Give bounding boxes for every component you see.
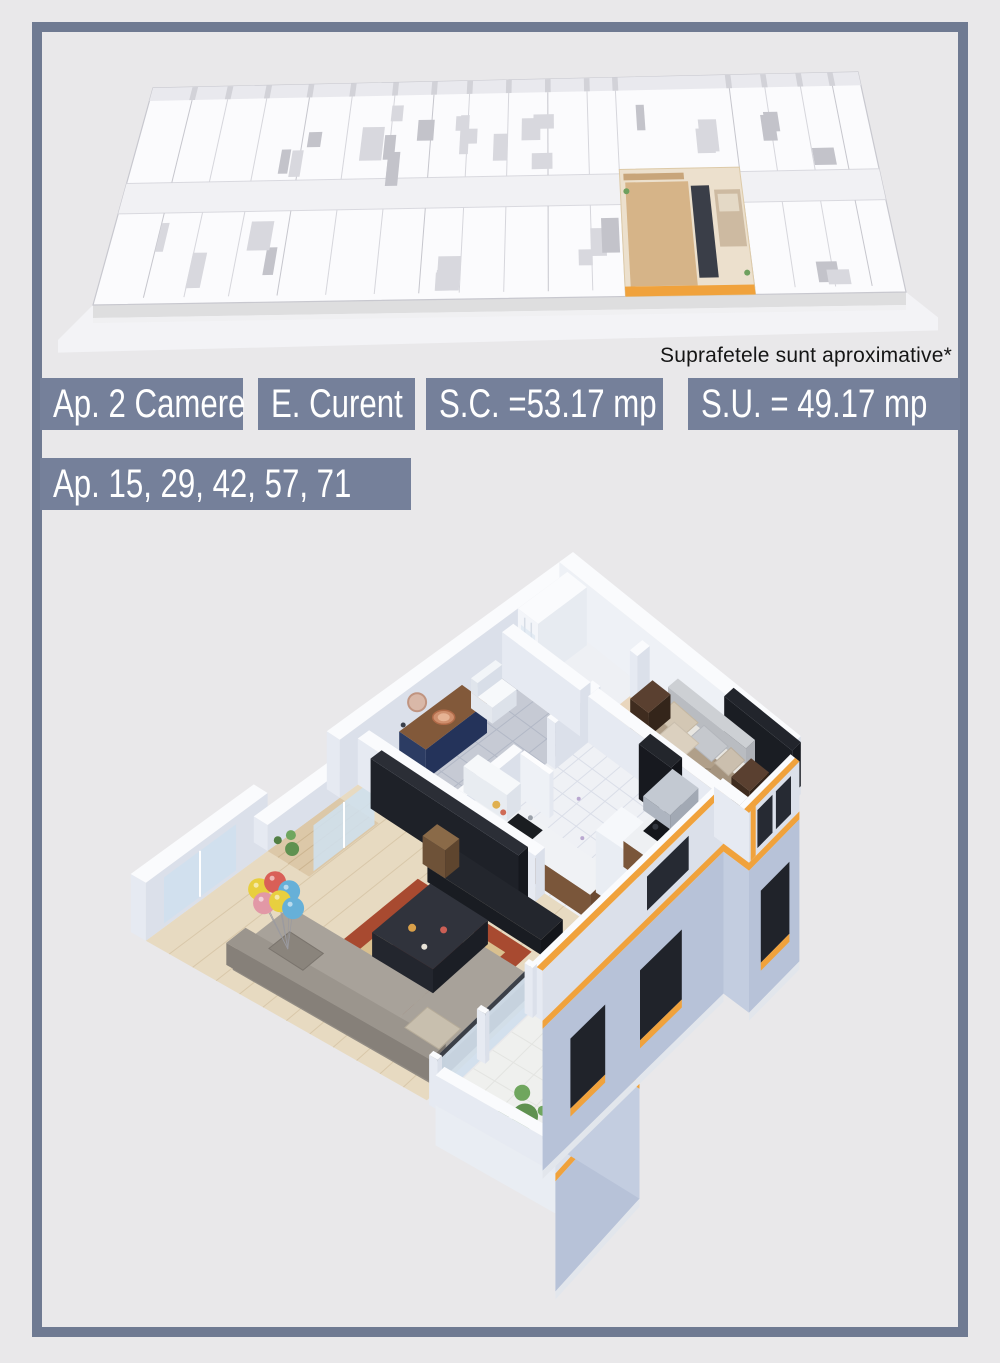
badge-apartment-numbers: Ap. 15, 29, 42, 57, 71 bbox=[40, 458, 411, 510]
apartment-3d-cutaway-image bbox=[95, 530, 915, 1330]
badge-stage: E. Curent bbox=[258, 378, 415, 430]
floor-plan-overview-image bbox=[58, 60, 938, 360]
badge-stage-label: E. Curent bbox=[271, 384, 403, 424]
flyer-page: Suprafetele sunt aproximative* Ap. 2 Cam… bbox=[0, 0, 1000, 1363]
badge-apartment-type: Ap. 2 Camere bbox=[40, 378, 243, 430]
badge-usable-surface: S.U. = 49.17 mp bbox=[688, 378, 960, 430]
approximation-note: Suprafetele sunt aproximative* bbox=[660, 344, 952, 368]
badge-built-surface: S.C. =53.17 mp bbox=[426, 378, 663, 430]
badge-apartment-type-label: Ap. 2 Camere bbox=[53, 384, 245, 424]
floor-overview-building bbox=[58, 72, 938, 353]
badge-built-surface-label: S.C. =53.17 mp bbox=[439, 384, 657, 424]
badge-apartment-numbers-label: Ap. 15, 29, 42, 57, 71 bbox=[53, 464, 351, 504]
badge-usable-surface-label: S.U. = 49.17 mp bbox=[701, 384, 927, 424]
